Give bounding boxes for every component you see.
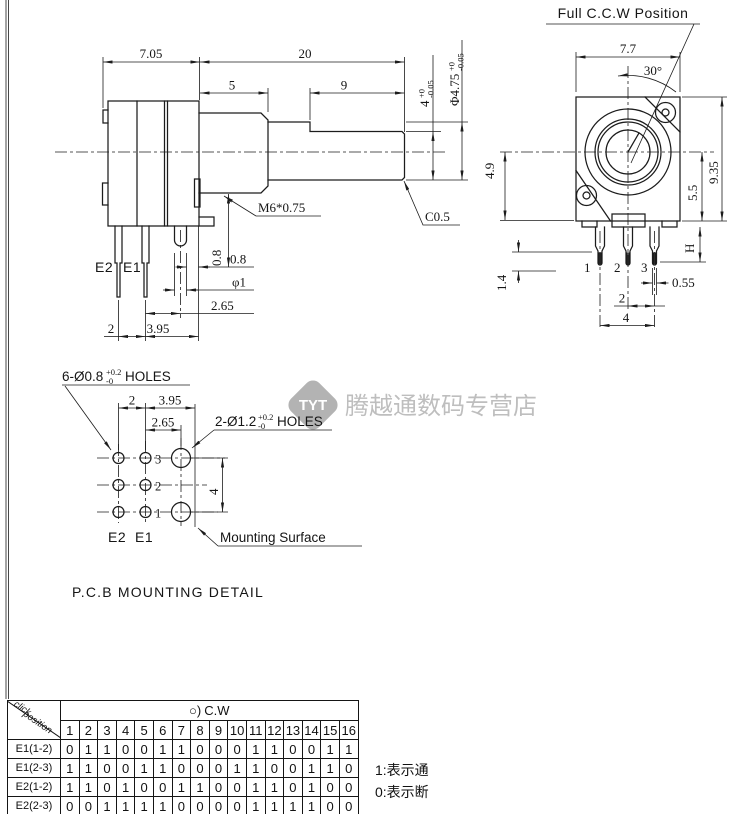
dim-14: 1.4	[494, 274, 509, 291]
col-header: 11	[246, 721, 265, 740]
value-cell: 0	[339, 759, 358, 778]
row-label: E2(1-2)	[8, 778, 61, 797]
table-row: E1(2-3)1100110001100110	[8, 759, 359, 778]
dim-pin4: 4	[623, 310, 630, 325]
shaft-outline	[268, 122, 405, 180]
value-cell: 1	[302, 778, 321, 797]
value-cell: 1	[246, 778, 265, 797]
value-cell: 1	[172, 778, 191, 797]
value-cell: 0	[98, 778, 117, 797]
value-cell: 0	[228, 778, 247, 797]
truth-table: clickposition○)C.W1234567891011121314151…	[7, 700, 359, 814]
label-e1: E1	[123, 259, 141, 275]
value-cell: 0	[284, 759, 303, 778]
value-cell: 1	[98, 797, 117, 814]
table-row: E2(1-2)1101001100110100	[8, 778, 359, 797]
svg-text:9.35: 9.35	[706, 161, 721, 184]
value-cell: 1	[265, 740, 284, 759]
dim-55: 5.5	[685, 185, 700, 201]
dim-77: 7.7	[620, 41, 637, 56]
holes2-label: 2-Ø1.2	[215, 414, 256, 429]
dim-9: 9	[341, 78, 348, 93]
dim-pin2: 2	[619, 291, 626, 306]
dim-2: 2	[108, 321, 115, 336]
pcb-row-1: 1	[155, 507, 161, 521]
dim-5: 5	[229, 78, 236, 93]
value-cell: 1	[135, 797, 154, 814]
value-cell: 0	[339, 797, 358, 814]
col-header: 6	[153, 721, 172, 740]
note-on: 1:表示通	[375, 759, 429, 781]
value-cell: 0	[98, 759, 117, 778]
value-cell: 1	[116, 797, 135, 814]
value-cell: 0	[191, 759, 210, 778]
dim-20: 20	[299, 46, 312, 61]
value-cell: 1	[153, 759, 172, 778]
value-cell: 0	[265, 759, 284, 778]
value-cell: 0	[191, 797, 210, 814]
value-cell: 0	[191, 740, 210, 759]
value-cell: 1	[339, 740, 358, 759]
holes6-label: 6-Ø0.8	[62, 369, 103, 384]
label-e2: E2	[95, 259, 113, 275]
value-cell: 0	[209, 778, 228, 797]
pcb-row-3: 3	[155, 453, 161, 467]
watermark-shop-text: 腾越通数码专营店	[345, 393, 537, 420]
note-off: 0:表示断	[375, 781, 429, 803]
chamfer-label: C0.5	[425, 209, 450, 224]
col-header: 3	[98, 721, 117, 740]
value-cell: 1	[79, 759, 98, 778]
row-label: E1(2-3)	[8, 759, 61, 778]
value-cell: 0	[79, 797, 98, 814]
value-cell: 1	[61, 759, 80, 778]
corner-cell: clickposition	[8, 701, 61, 740]
pcb-label-e1: E1	[135, 529, 153, 545]
value-cell: 0	[339, 778, 358, 797]
value-cell: 0	[209, 740, 228, 759]
body-section-lines	[137, 101, 168, 226]
dim-395: 3.95	[147, 321, 170, 336]
dim-shaft-dia: Φ4.75 +0 -0.05	[447, 53, 466, 106]
value-cell: 1	[265, 778, 284, 797]
col-header: 7	[172, 721, 191, 740]
dim-pin-dia: φ1	[232, 275, 246, 290]
svg-text:-0.05: -0.05	[456, 53, 466, 71]
value-cell: 1	[302, 797, 321, 814]
watermark-logo-text: TYT	[299, 397, 327, 414]
bushing-outline	[199, 113, 268, 193]
thread-label: M6*0.75	[258, 200, 305, 215]
pin-label-3: 3	[641, 260, 648, 275]
pcb-dim-2: 2	[129, 393, 136, 408]
col-header: 1	[61, 721, 80, 740]
dim-055: 0.55	[672, 275, 695, 290]
dim-49: 4.9	[482, 163, 497, 179]
col-header: 13	[284, 721, 303, 740]
value-cell: 0	[209, 797, 228, 814]
col-header: 4	[116, 721, 135, 740]
pin-e2	[115, 226, 122, 297]
dim-h: H	[682, 244, 697, 253]
pin-e1	[142, 226, 149, 297]
col-header: 15	[321, 721, 340, 740]
value-cell: 0	[321, 797, 340, 814]
value-cell: 1	[116, 778, 135, 797]
pin-label-1: 1	[584, 260, 591, 275]
dim-30deg: 30°	[644, 63, 662, 78]
svg-text:4: 4	[417, 100, 432, 107]
value-cell: 1	[302, 759, 321, 778]
col-header: 12	[265, 721, 284, 740]
value-cell: 1	[321, 740, 340, 759]
mounting-surface-label: Mounting Surface	[220, 530, 326, 545]
table-notes: 1:表示通 0:表示断	[375, 759, 429, 803]
value-cell: 0	[228, 797, 247, 814]
value-cell: 0	[321, 778, 340, 797]
pcb-dim-395: 3.95	[159, 393, 182, 408]
row-label: E1(1-2)	[8, 740, 61, 759]
value-cell: 1	[191, 778, 210, 797]
dim-08-vertical: 0.8	[209, 250, 224, 266]
body-tabs	[103, 110, 109, 205]
value-cell: 1	[246, 740, 265, 759]
svg-text:HOLES: HOLES	[125, 369, 171, 384]
svg-text:-0.05: -0.05	[426, 80, 436, 98]
value-cell: 1	[284, 797, 303, 814]
svg-text:0.8: 0.8	[209, 250, 224, 266]
screw-boss-tr	[656, 103, 676, 123]
pcb-row-2: 2	[155, 480, 161, 494]
pcb-detail-title: P.C.B MOUNTING DETAIL	[72, 584, 264, 600]
svg-text:5.5: 5.5	[685, 185, 700, 201]
cw-rotation-icon: ○)	[189, 703, 201, 718]
pcb-label-e2: E2	[108, 529, 126, 545]
value-cell: 1	[228, 759, 247, 778]
value-cell: 1	[153, 740, 172, 759]
value-cell: 0	[61, 797, 80, 814]
value-cell: 0	[172, 797, 191, 814]
front-view: Full C.C.W Position 7.7 30° 1 2 3	[482, 5, 727, 330]
col-header: 8	[191, 721, 210, 740]
svg-text:-0: -0	[106, 376, 113, 386]
value-cell: 1	[79, 740, 98, 759]
value-cell: 1	[153, 797, 172, 814]
cw-label: C.W	[204, 703, 229, 718]
value-cell: 0	[172, 759, 191, 778]
value-cell: 1	[79, 778, 98, 797]
svg-text:Φ4.75: Φ4.75	[447, 74, 462, 106]
svg-text:-0: -0	[258, 421, 265, 431]
row-label: E2(2-3)	[8, 797, 61, 814]
value-cell: 1	[172, 740, 191, 759]
cw-header: ○)C.W	[61, 701, 359, 721]
value-cell: 0	[116, 759, 135, 778]
value-cell: 0	[153, 778, 172, 797]
technical-drawing: TYT 腾越通数码专营店 7.05 20 5 9	[0, 0, 737, 814]
table-row: E1(1-2)0110011000110011	[8, 740, 359, 759]
value-cell: 0	[116, 740, 135, 759]
dim-265: 2.65	[211, 298, 234, 313]
svg-text:H: H	[682, 244, 697, 253]
value-cell: 0	[135, 778, 154, 797]
full-ccw-title: Full C.C.W Position	[558, 5, 689, 21]
dim-08-horizontal: 0.8	[230, 252, 246, 267]
svg-text:1.4: 1.4	[494, 274, 509, 291]
value-cell: 1	[98, 740, 117, 759]
value-cell: 0	[228, 740, 247, 759]
value-cell: 1	[135, 759, 154, 778]
pin-label-2: 2	[614, 260, 621, 275]
value-cell: 0	[209, 759, 228, 778]
svg-text:4.9: 4.9	[482, 163, 497, 179]
value-cell: 1	[61, 778, 80, 797]
body-outline	[108, 101, 199, 226]
pcb-dim-4: 4	[206, 488, 221, 495]
col-header: 14	[302, 721, 321, 740]
value-cell: 1	[265, 797, 284, 814]
col-header: 9	[209, 721, 228, 740]
value-cell: 0	[135, 740, 154, 759]
pcb-dim-265: 2.65	[152, 415, 175, 430]
value-cell: 1	[246, 759, 265, 778]
table-row: E2(2-3)0011110000111100	[8, 797, 359, 814]
corner-position-label: position	[21, 709, 54, 737]
side-view: 7.05 20 5 9 4 +0 -0.05 Φ4.75 +0 -0.05 M6…	[55, 40, 468, 341]
mount-notch	[199, 217, 214, 226]
value-cell: 0	[302, 740, 321, 759]
col-header: 2	[79, 721, 98, 740]
value-cell: 1	[321, 759, 340, 778]
value-cell: 0	[284, 740, 303, 759]
dim-935: 9.35	[706, 161, 721, 184]
drawing-sheet: TYT 腾越通数码专营店 7.05 20 5 9	[0, 0, 737, 814]
svg-text:HOLES: HOLES	[277, 414, 323, 429]
col-header: 16	[339, 721, 358, 740]
value-cell: 1	[246, 797, 265, 814]
value-cell: 0	[61, 740, 80, 759]
value-cell: 0	[284, 778, 303, 797]
col-header: 10	[228, 721, 247, 740]
svg-text:4: 4	[206, 488, 221, 495]
sheet-border	[6, 0, 9, 699]
col-header: 5	[135, 721, 154, 740]
dim-7-05: 7.05	[140, 46, 163, 61]
